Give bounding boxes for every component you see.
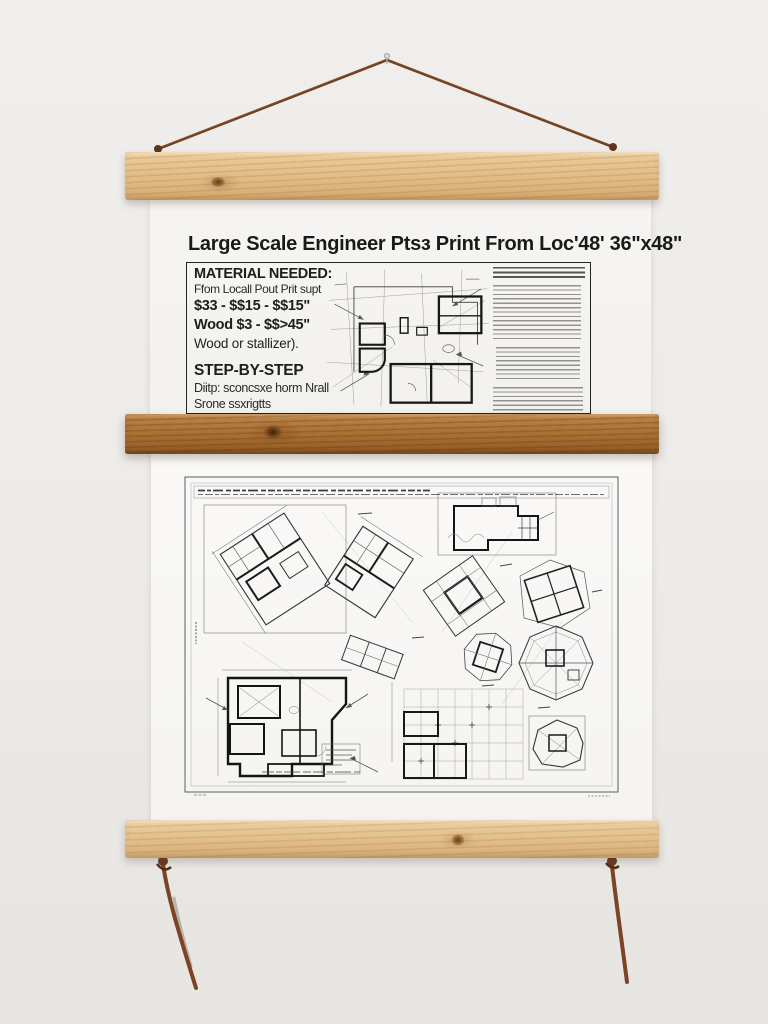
price-line: Wood $3 - $$>45" [194,316,334,335]
rotated-plan-b [319,517,423,622]
top-hanging-cord [154,53,617,153]
column-grid-plan [404,689,523,779]
materials-box: MATERIAL NEEDED: Ffom Locall Pout Prit s… [186,262,591,414]
steps-line: Diitp: sconcsxe horm Nrall [194,380,334,396]
materials-wood-line: Wood or stallizer). [194,335,334,352]
octagon-plan-large [519,626,593,700]
materials-source-line: Ffom Locall Pout Prit supt [194,282,334,297]
fine-print-header [493,267,585,280]
main-floor-plan [206,670,392,782]
wall-nail-icon [384,53,389,58]
hexagon-plan [520,560,590,628]
steps-line: Srone ssxrigtts [194,396,334,412]
blueprint-sheet [151,446,652,830]
steps-heading: STEP-BY-STEP [194,362,334,380]
materials-text-column: MATERIAL NEEDED: Ffom Locall Pout Prit s… [194,266,334,412]
bottom-hanger-bar [125,820,659,858]
slim-rotated-plan [342,635,404,679]
rotated-plan-a [204,503,346,634]
annotation-dashes [262,513,602,772]
bottom-right-cord-tail [606,856,627,982]
octagon-plan-boxed [529,716,585,770]
fine-print-column [493,267,585,417]
poster-wall-photo: Large Scale Engineer Ptsɜ Print From Loc… [0,0,768,1024]
rotated-plan-grid [423,556,504,636]
poster-title: Large Scale Engineer Ptsɜ Print From Loc… [188,232,628,256]
bottom-left-cord-tail [157,856,196,988]
instruction-sheet: Large Scale Engineer Ptsɜ Print From Loc… [150,198,651,450]
fine-print-paragraph [496,347,580,381]
fine-print-paragraph [493,387,583,411]
materials-heading: MATERIAL NEEDED: [194,266,334,282]
middle-hanger-bar [125,414,659,454]
top-hanger-bar [125,152,659,200]
floor-plan-sketch [325,265,491,411]
fine-print-paragraph [493,285,581,341]
boxed-plan-c [438,493,556,555]
price-line: $33 - $$15 - $$15" [194,297,334,316]
blueprint-drawing [182,472,622,800]
small-octagon-plan [456,625,519,688]
